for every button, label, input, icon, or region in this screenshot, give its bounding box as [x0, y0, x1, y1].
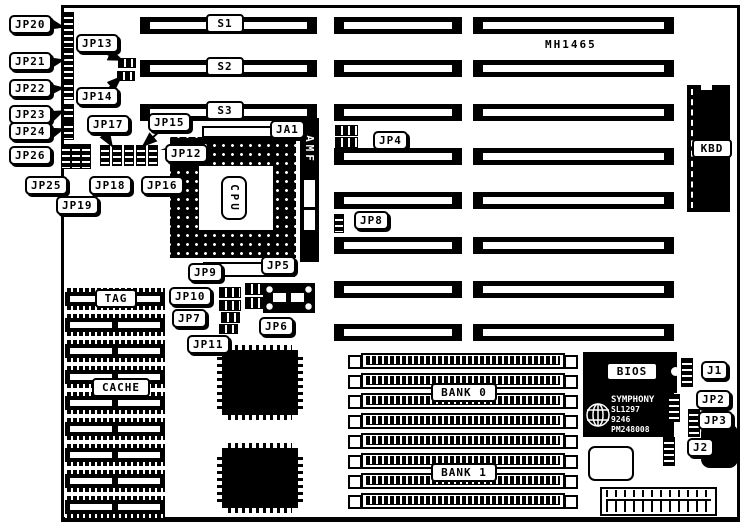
label-jp9: JP9 [188, 263, 223, 282]
jumper-row-4 [136, 145, 146, 166]
bank1-label: BANK 1 [431, 463, 497, 482]
component-outline [588, 446, 634, 481]
jumper-jp10 [219, 300, 241, 311]
symphony-brand: SYMPHONY [611, 395, 673, 405]
label-jp6: JP6 [259, 317, 294, 336]
simm-socket [348, 433, 578, 449]
slot-bar [473, 17, 674, 34]
amf-stripe [304, 210, 315, 230]
jumper-row-2 [112, 145, 122, 166]
jumper-j1 [681, 358, 693, 387]
label-jp3: JP3 [698, 411, 733, 430]
cache-chip [65, 470, 165, 492]
jumper-ja1 [335, 125, 358, 136]
jumper-jp7 [221, 312, 240, 323]
symphony-serial: PM248008 [611, 425, 673, 435]
jumper-row-1 [100, 145, 110, 166]
jumper-j2 [663, 437, 675, 466]
jumper-jp11 [219, 324, 238, 334]
symphony-date-code: 9246 [611, 415, 673, 425]
slot-label-s3: S3 [206, 101, 244, 120]
label-jp14: JP14 [76, 87, 119, 106]
label-jp19: JP19 [56, 196, 99, 215]
jumper-jp24 [63, 121, 74, 140]
globe-icon [585, 396, 611, 434]
simm-socket [348, 413, 578, 429]
slot-bar [473, 148, 674, 165]
label-jp16: JP16 [141, 176, 184, 195]
qfp-chip [222, 448, 298, 508]
qfp-chip [222, 350, 298, 415]
jumper-jp22 [63, 80, 74, 100]
label-jp2: JP2 [696, 390, 731, 409]
label-jp13: JP13 [76, 34, 119, 53]
simm-socket [348, 493, 578, 509]
label-jp12: JP12 [165, 144, 208, 163]
label-jp26: JP26 [9, 146, 52, 165]
bios-chip-notch [671, 367, 680, 376]
jumper-jp26 [61, 144, 71, 169]
jumper-row-5 [148, 145, 158, 166]
power-connector [600, 487, 717, 516]
slot-bar [473, 281, 674, 298]
label-ja1: JA1 [270, 120, 305, 139]
jumper-jp13 [118, 58, 136, 68]
simm-socket [348, 353, 578, 369]
slot-label-s1: S1 [206, 14, 244, 33]
slot-bar [473, 104, 674, 121]
slot-bar [334, 324, 462, 341]
jumper-jp14 [117, 71, 135, 81]
keyboard-connector-notch [701, 85, 712, 90]
slot-bar [473, 237, 674, 254]
label-jp8: JP8 [354, 211, 389, 230]
tag-label: TAG [95, 289, 137, 308]
jumper-jp21 [63, 48, 74, 84]
slot-bar [334, 192, 462, 209]
label-jp21: JP21 [9, 52, 52, 71]
jumper-row-3 [124, 145, 134, 166]
jumper-jp25 [71, 144, 81, 169]
cache-chip [65, 444, 165, 466]
symphony-chip-markings: SYMPHONY SL1297 9246 PM248008 [611, 395, 673, 435]
cache-label: CACHE [92, 378, 150, 397]
jumper-jp8 [334, 214, 344, 233]
bank0-label: BANK 0 [431, 383, 497, 402]
label-jp24: JP24 [9, 122, 52, 141]
symphony-part: SL1297 [611, 405, 673, 415]
jumper-jp5 [245, 283, 265, 295]
jumper-jp20 [63, 12, 74, 52]
motherboard-diagram: S1 S2 S3 MH1465 CPU AMF KBD [0, 0, 744, 527]
label-jp18: JP18 [89, 176, 132, 195]
slot-bar [473, 60, 674, 77]
cache-chip [65, 340, 165, 362]
label-j1: J1 [701, 361, 728, 380]
label-jp11: JP11 [187, 335, 230, 354]
label-jp10: JP10 [169, 287, 212, 306]
jumper-jp4 [335, 137, 358, 148]
slot-bar [334, 17, 462, 34]
slot-bar [473, 192, 674, 209]
slot-label-s2: S2 [206, 57, 244, 76]
kbd-label: KBD [692, 139, 732, 158]
jumper-jp23 [63, 104, 74, 121]
cache-chip [65, 314, 165, 336]
cache-chip [65, 418, 165, 440]
cpu-label: CPU [221, 176, 247, 220]
cache-chip [65, 496, 165, 518]
slot-bar [334, 60, 462, 77]
label-jp25: JP25 [25, 176, 68, 195]
amf-stripe [304, 180, 315, 207]
slot-bar [334, 104, 462, 121]
label-jp5: JP5 [261, 256, 296, 275]
slot-bar [334, 148, 462, 165]
label-jp15: JP15 [148, 113, 191, 132]
slot-bar [334, 281, 462, 298]
label-jp7: JP7 [172, 309, 207, 328]
label-jp20: JP20 [9, 15, 52, 34]
label-jp4: JP4 [373, 131, 408, 150]
jumper-jp6 [245, 297, 265, 309]
board-model-text: MH1465 [545, 38, 597, 51]
label-j2: J2 [687, 438, 714, 457]
slot-bar [473, 324, 674, 341]
label-jp17: JP17 [87, 115, 130, 134]
bios-label: BIOS [606, 362, 658, 381]
label-jp22: JP22 [9, 79, 52, 98]
jumper-jp9 [219, 287, 241, 298]
slot-bar [334, 237, 462, 254]
jumper-jp19 [81, 144, 91, 169]
oscillator [263, 283, 315, 313]
